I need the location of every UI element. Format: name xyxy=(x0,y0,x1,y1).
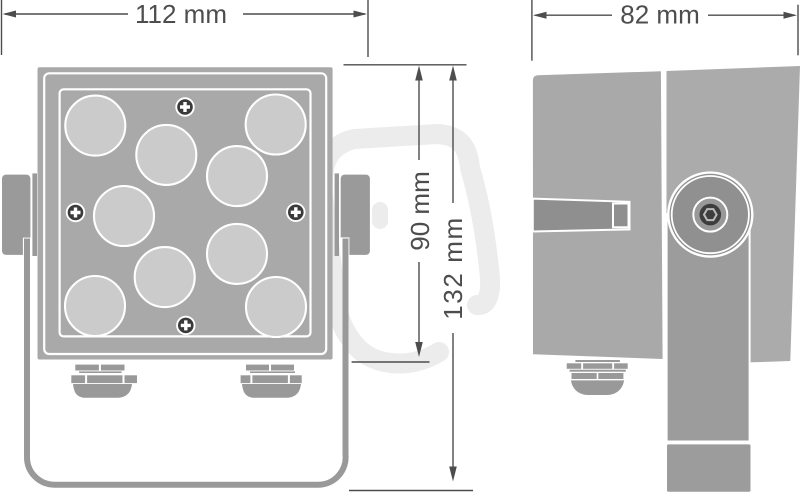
svg-text:112 mm: 112 mm xyxy=(135,0,227,29)
svg-text:90 mm: 90 mm xyxy=(405,171,435,250)
svg-text:82 mm: 82 mm xyxy=(620,0,699,30)
svg-text:132 mm: 132 mm xyxy=(438,216,468,320)
